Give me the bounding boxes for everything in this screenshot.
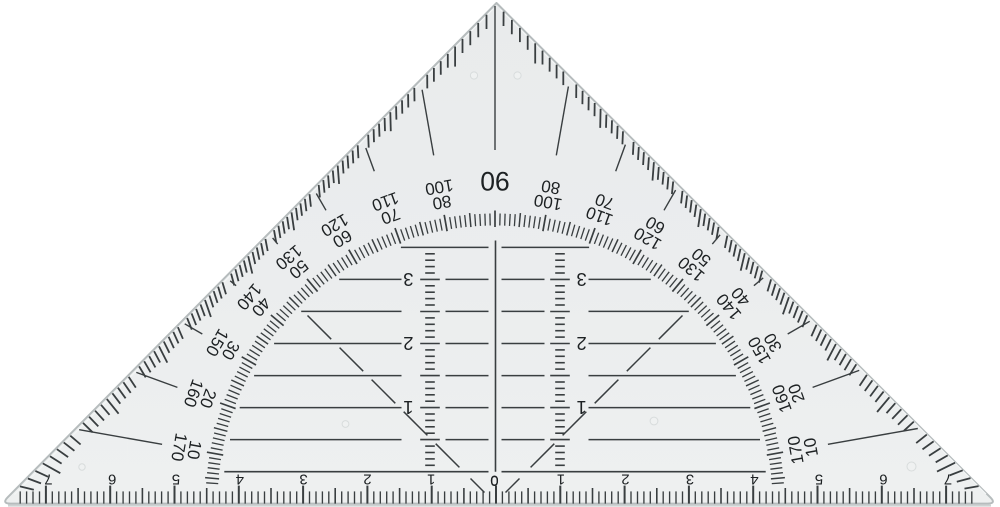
svg-text:10: 10 [183, 439, 205, 461]
svg-text:7: 7 [944, 471, 952, 488]
svg-text:3: 3 [686, 471, 694, 488]
svg-text:1: 1 [576, 397, 586, 418]
svg-text:5: 5 [815, 471, 823, 488]
svg-text:5: 5 [172, 471, 180, 488]
svg-text:3: 3 [576, 269, 586, 290]
svg-text:3: 3 [299, 471, 307, 488]
svg-text:3: 3 [403, 269, 413, 290]
svg-text:1: 1 [557, 471, 565, 488]
svg-text:80: 80 [431, 191, 453, 213]
svg-text:4: 4 [236, 471, 244, 488]
svg-text:7: 7 [44, 471, 52, 488]
svg-text:6: 6 [879, 471, 887, 488]
svg-text:1: 1 [403, 397, 413, 418]
svg-text:2: 2 [621, 471, 629, 488]
svg-text:0: 0 [490, 472, 498, 489]
svg-text:6: 6 [108, 471, 116, 488]
svg-text:90: 90 [480, 166, 509, 196]
svg-text:2: 2 [363, 471, 371, 488]
svg-text:1: 1 [427, 471, 435, 488]
svg-text:4: 4 [750, 471, 758, 488]
svg-text:2: 2 [576, 333, 586, 354]
svg-text:2: 2 [403, 333, 413, 354]
